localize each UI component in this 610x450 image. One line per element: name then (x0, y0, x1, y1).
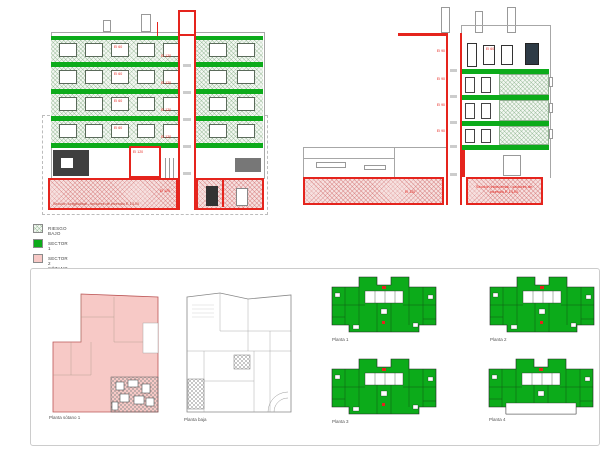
stair-bulkhead (178, 10, 196, 36)
chimney (103, 20, 111, 32)
stair-line (173, 158, 174, 178)
window (465, 129, 475, 143)
planta-2-drawing (487, 275, 597, 335)
fire-rating-label: EI 60 (114, 72, 122, 76)
floor-band: EI 60 (51, 40, 263, 62)
window (237, 124, 255, 138)
core-rating-label: EI 120 (161, 108, 171, 112)
plan-label: Planta sótano 1 (49, 415, 80, 420)
planta-baja-drawing (184, 291, 294, 415)
fire-rating-label: EI 60 (114, 45, 122, 49)
sector-divider (222, 180, 224, 207)
stair-landing (450, 121, 457, 124)
stair-landing (450, 173, 457, 176)
window (59, 97, 77, 111)
legend-swatch-hatch (33, 224, 43, 233)
plan-label: Planta 1 (332, 337, 349, 342)
plan-setback (506, 403, 576, 414)
window (59, 70, 77, 84)
legend-swatch-green (33, 239, 43, 248)
section-caption: Sección transversal - sectores de incend… (471, 185, 537, 194)
fire-rating-label: EI 120 (160, 189, 170, 193)
window (501, 45, 513, 65)
floor-band: EI 60 (51, 121, 263, 143)
sotano-white-notch (143, 323, 158, 353)
window (85, 43, 103, 57)
floor-band: EI 60 (51, 94, 263, 116)
fire-rating-label: EI 120 (405, 190, 415, 194)
drawing-sheet: EI 60 EI 60 EI 60 (0, 0, 610, 450)
section-caption: Sección longitudinal - sectores de incen… (53, 202, 165, 206)
stair-line (169, 158, 170, 178)
window (237, 70, 255, 84)
wall-hatch (499, 100, 549, 121)
window (59, 124, 77, 138)
plan-label: Planta 2 (490, 337, 507, 342)
plan-courtyard (522, 373, 560, 385)
chimney (441, 7, 450, 33)
low-wing (303, 147, 446, 177)
window (465, 77, 475, 93)
window (61, 158, 73, 168)
core-rating-label: EI 120 (161, 81, 171, 85)
protected-room: EI 120 (129, 146, 161, 178)
window (237, 43, 255, 57)
plan-courtyard (365, 291, 403, 303)
door (206, 186, 218, 206)
window (137, 43, 155, 57)
core-rating-label: EI 120 (161, 135, 171, 139)
stair-landing (450, 95, 457, 98)
legend-label: RIESGO BAJO (48, 226, 67, 236)
legend-label: SECTOR 1 (48, 241, 68, 251)
stair-core (446, 33, 462, 205)
window (137, 124, 155, 138)
plan-label: Planta baja (184, 417, 207, 422)
stair-landing (183, 145, 191, 148)
floor-slab (458, 145, 549, 150)
story-rating-label: EI 90 (434, 49, 445, 53)
window (525, 43, 539, 65)
core-rating-label: EI 120 (161, 54, 171, 58)
stair-landing (183, 118, 191, 121)
window (481, 129, 491, 143)
top-floor: EI 60 (462, 39, 548, 69)
window (137, 97, 155, 111)
ground-dark-volume (235, 158, 261, 172)
longitudinal-section-drawing: EI 60 EI 60 EI 60 (45, 8, 269, 214)
stair-landing (183, 172, 191, 175)
stair-line (165, 158, 166, 178)
door (236, 188, 248, 206)
basement-sector-box: Sección transversal - sectores de incend… (466, 177, 543, 205)
window (465, 103, 475, 119)
story-rating-label: EI 90 (434, 129, 445, 133)
fire-rating-label: EI 120 (133, 150, 143, 154)
balcony (549, 103, 553, 113)
counter (316, 162, 346, 168)
plan-courtyard (523, 291, 561, 303)
door (503, 155, 521, 176)
stair-landing (183, 64, 191, 67)
balcony (549, 129, 553, 139)
window (137, 70, 155, 84)
baja-hatch-room (234, 355, 250, 369)
window (85, 124, 103, 138)
basement-sector-box: EI 120 (303, 177, 444, 205)
ground-dark-volume (53, 150, 89, 176)
transversal-section-drawing: EI 60 EI 90 EI 90 EI 90 EI 90 EI 90 (303, 5, 551, 210)
wall-hatch (499, 126, 549, 145)
basement-sector-box: Sección longitudinal - sectores de incen… (48, 178, 178, 210)
window (481, 77, 491, 93)
balcony (549, 77, 553, 87)
stair-core (178, 36, 196, 210)
interior-line (304, 158, 394, 159)
window (209, 97, 227, 111)
fire-rating-label: EI 60 (114, 126, 122, 130)
counter (364, 165, 386, 170)
planta-4-drawing (486, 357, 596, 417)
window (85, 70, 103, 84)
legend-swatch-pink (33, 254, 43, 263)
planta-1-drawing (329, 275, 439, 335)
stair-landing (450, 145, 457, 148)
window (467, 43, 477, 67)
window (85, 97, 103, 111)
story-rating-label: EI 90 (434, 77, 445, 81)
stair-landing (450, 69, 457, 72)
stair-landing (183, 91, 191, 94)
baja-hatch-room (188, 379, 204, 409)
plan-label: Planta 3 (332, 419, 349, 424)
window (59, 43, 77, 57)
floor-band: EI 60 (51, 67, 263, 89)
fire-rating-label: EI 60 (486, 47, 494, 51)
window (209, 70, 227, 84)
window (237, 97, 255, 111)
basement-sector-box (196, 178, 264, 210)
window (481, 103, 491, 119)
planta-sotano-drawing (51, 291, 161, 415)
story-rating-label: EI 90 (434, 103, 445, 107)
wall-hatch (499, 74, 549, 95)
red-wall-segment (462, 150, 465, 177)
plan-courtyard (365, 373, 403, 385)
planta-3-drawing (329, 357, 439, 417)
chimney (141, 14, 151, 32)
interior-line (394, 148, 395, 178)
fire-rating-label: EI 60 (114, 99, 122, 103)
floor-plans-panel: Planta sótano 1 Planta baja (30, 268, 600, 446)
window (209, 43, 227, 57)
plan-label: Planta 4 (489, 417, 506, 422)
window (209, 124, 227, 138)
